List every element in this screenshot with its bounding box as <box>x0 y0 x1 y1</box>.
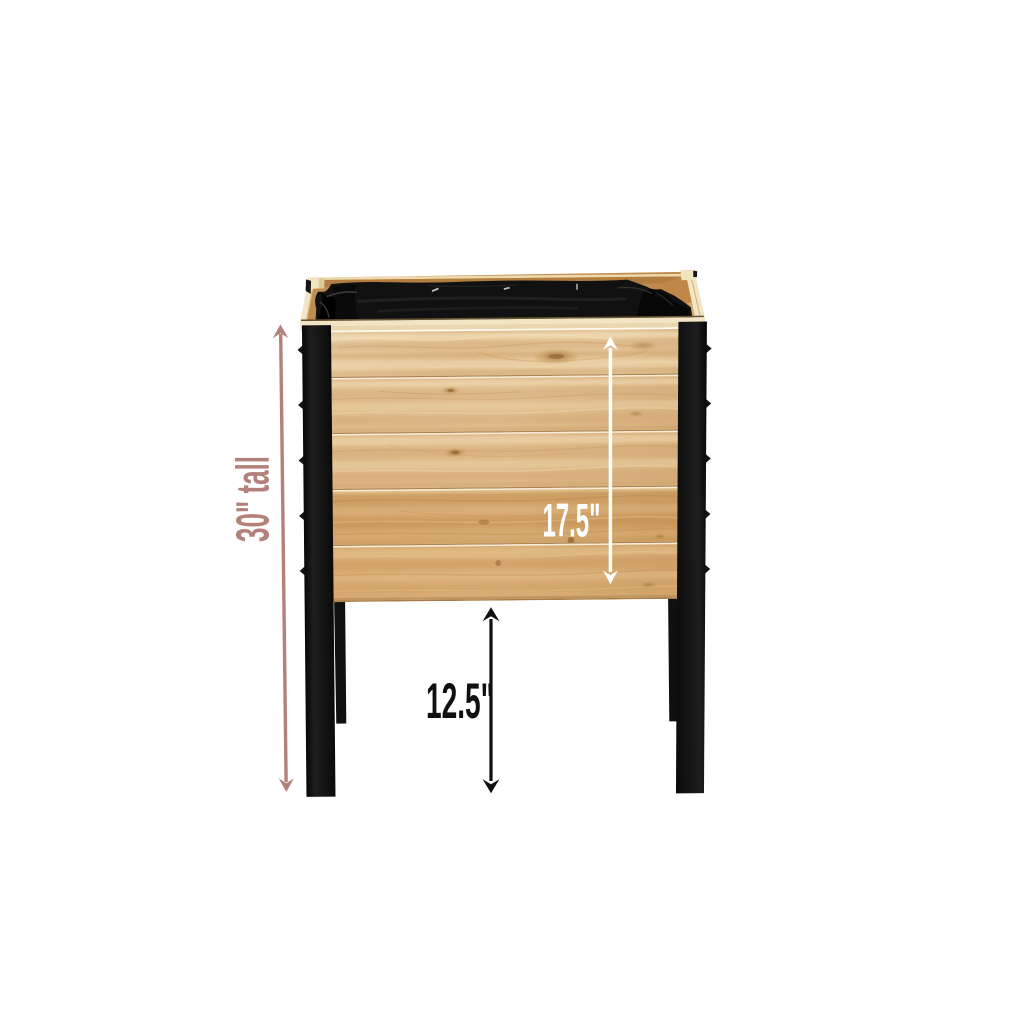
svg-text:30" tall: 30" tall <box>227 456 279 542</box>
svg-text:12.5": 12.5" <box>426 673 494 729</box>
svg-text:17.5": 17.5" <box>543 494 601 547</box>
